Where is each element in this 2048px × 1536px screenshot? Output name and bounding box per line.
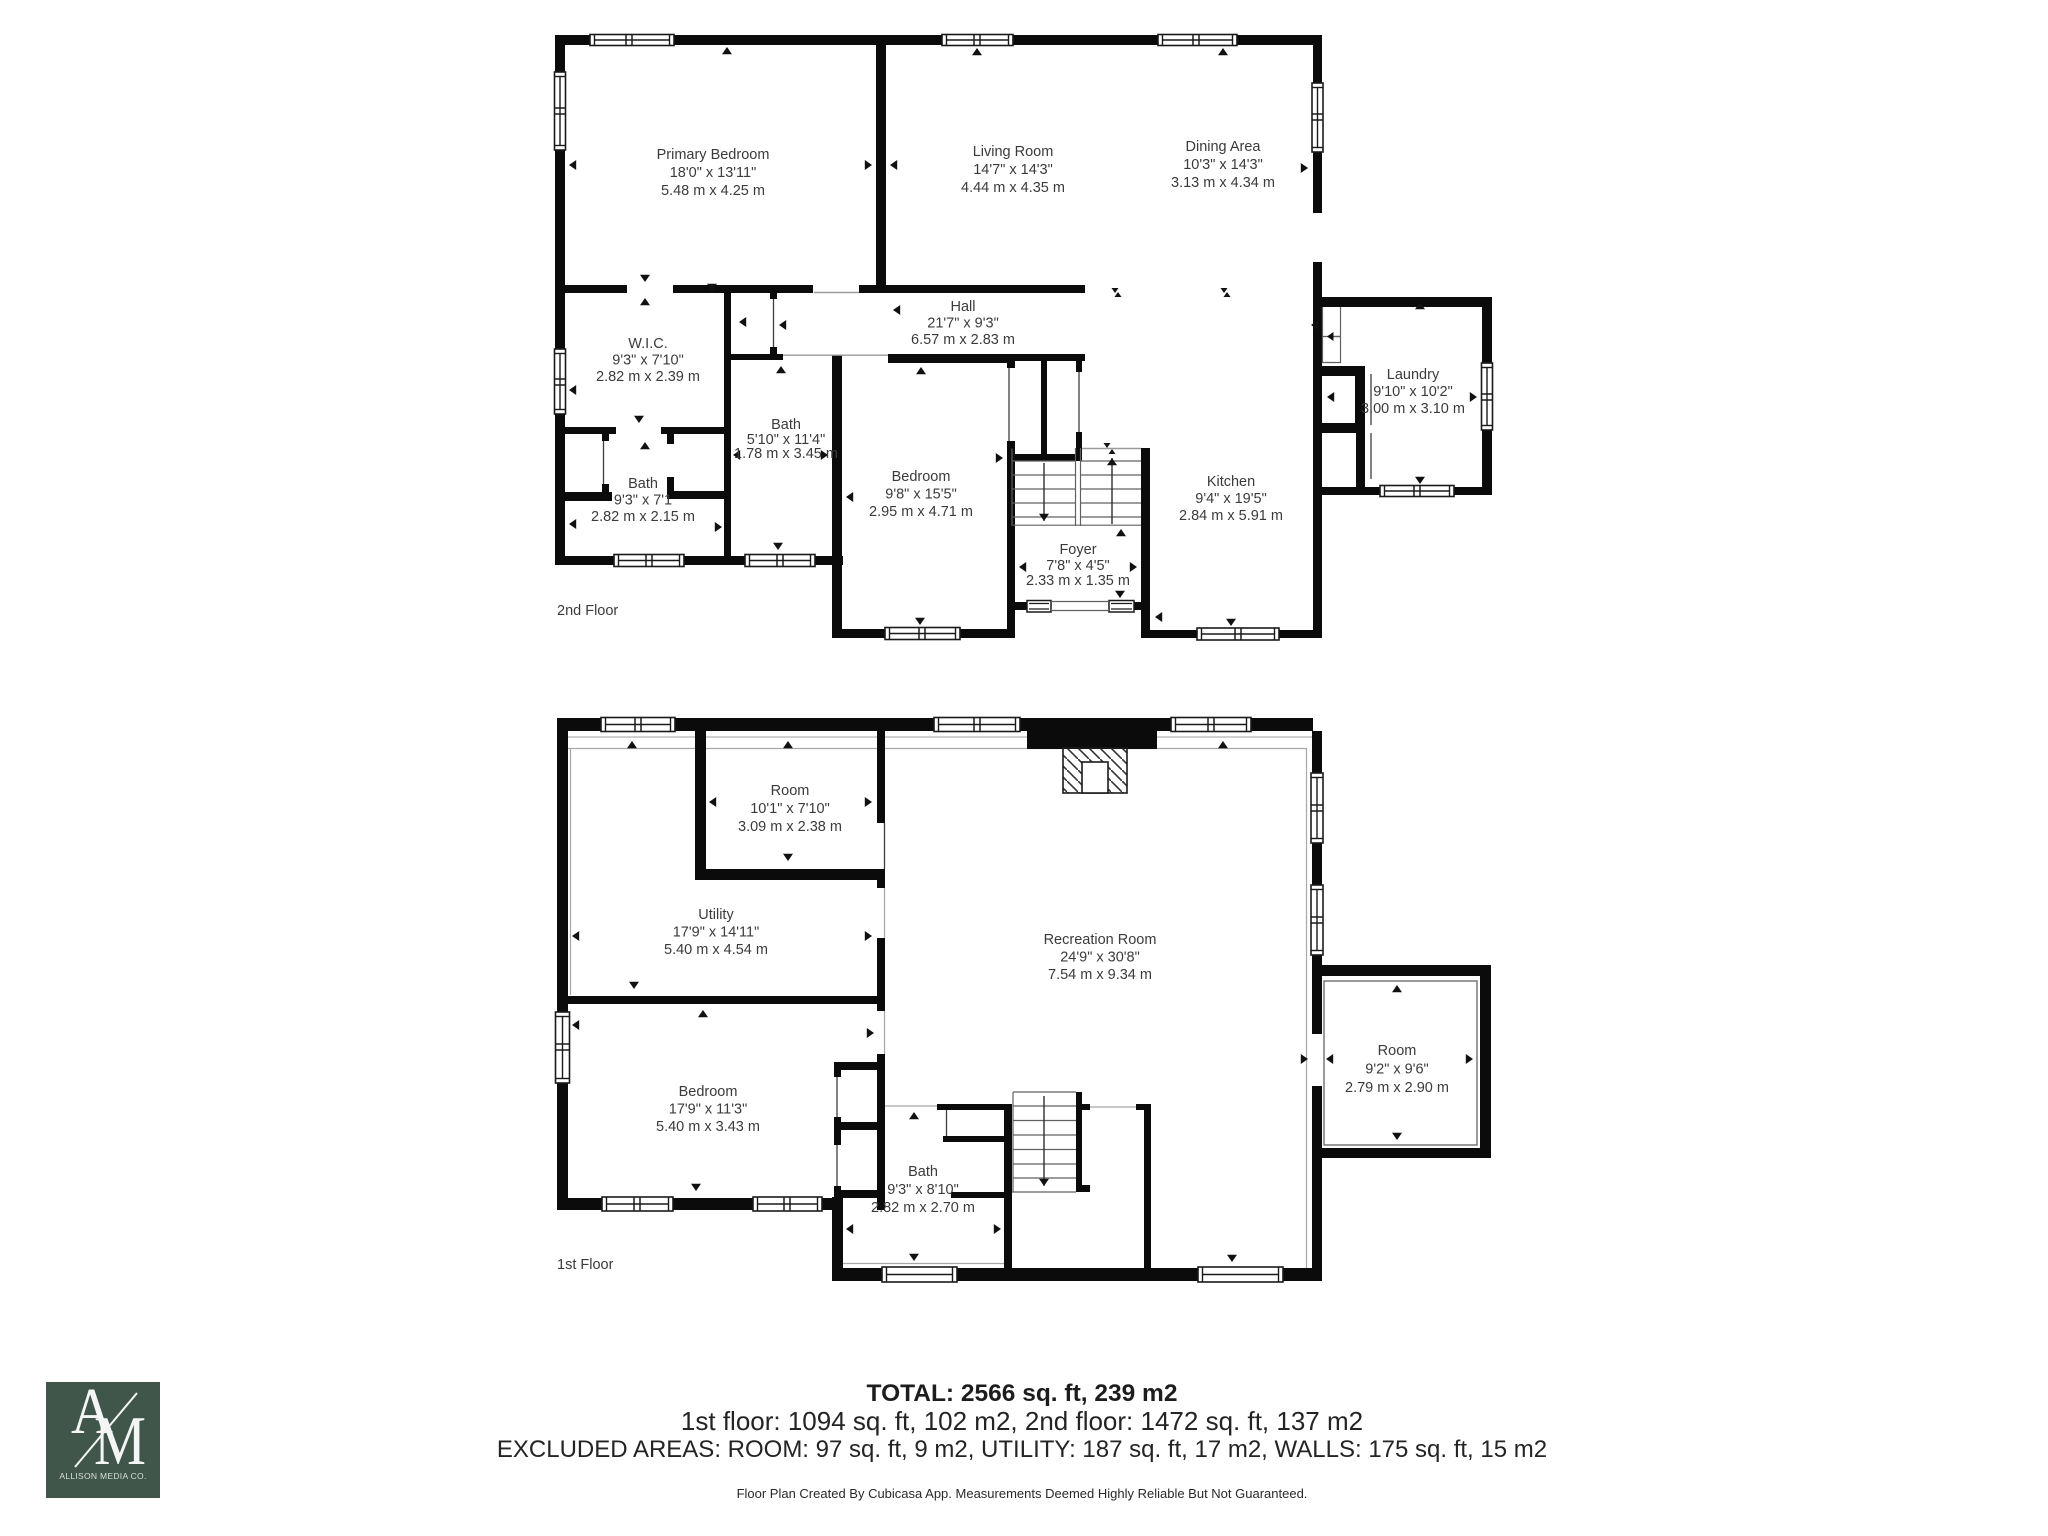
svg-text:Primary Bedroom: Primary Bedroom (657, 147, 770, 163)
svg-text:2.33 m x 1.35 m: 2.33 m x 1.35 m (1026, 573, 1130, 589)
svg-text:4.44 m x 4.35 m: 4.44 m x 4.35 m (961, 180, 1065, 196)
svg-text:1st Floor: 1st Floor (557, 1257, 614, 1273)
svg-text:2.79 m x 2.90 m: 2.79 m x 2.90 m (1345, 1080, 1449, 1096)
svg-text:2.82 m x 2.39 m: 2.82 m x 2.39 m (596, 369, 700, 385)
svg-text:18'0" x 13'11": 18'0" x 13'11" (670, 165, 757, 181)
svg-text:9'3" x 8'10": 9'3" x 8'10" (887, 1182, 958, 1198)
svg-text:EXCLUDED AREAS: ROOM: 97 sq. f: EXCLUDED AREAS: ROOM: 97 sq. ft, 9 m2, U… (497, 1436, 1547, 1463)
svg-text:17'9" x 14'11": 17'9" x 14'11" (673, 925, 760, 941)
svg-text:Bedroom: Bedroom (892, 469, 951, 485)
svg-text:9'10" x 10'2": 9'10" x 10'2" (1373, 384, 1453, 400)
svg-text:5.40 m x 3.43 m: 5.40 m x 3.43 m (656, 1119, 760, 1135)
svg-text:M: M (94, 1403, 146, 1480)
svg-text:1st floor: 1094 sq. ft, 102 m2: 1st floor: 1094 sq. ft, 102 m2, 2nd floo… (681, 1406, 1363, 1436)
svg-text:ALLISON MEDIA CO.: ALLISON MEDIA CO. (59, 1471, 146, 1481)
svg-text:5.40 m x 4.54 m: 5.40 m x 4.54 m (664, 942, 768, 958)
svg-text:2.82 m x 2.70 m: 2.82 m x 2.70 m (871, 1200, 975, 1216)
svg-text:3.09 m x 2.38 m: 3.09 m x 2.38 m (738, 819, 842, 835)
svg-text:21'7" x 9'3": 21'7" x 9'3" (927, 316, 998, 332)
svg-text:Living Room: Living Room (973, 144, 1054, 160)
svg-text:10'1" x 7'10": 10'1" x 7'10" (750, 801, 830, 817)
svg-text:3.13 m x 4.34 m: 3.13 m x 4.34 m (1171, 175, 1275, 191)
svg-text:Laundry: Laundry (1387, 367, 1440, 383)
svg-text:Recreation Room: Recreation Room (1044, 932, 1157, 948)
svg-text:6.57 m x 2.83 m: 6.57 m x 2.83 m (911, 332, 1015, 348)
svg-text:3.00 m x 3.10 m: 3.00 m x 3.10 m (1361, 401, 1465, 417)
svg-text:Utility: Utility (698, 907, 734, 923)
svg-text:Room: Room (1378, 1043, 1417, 1059)
svg-text:9'3" x 7'1: 9'3" x 7'1 (614, 493, 672, 509)
svg-text:TOTAL: 2566 sq. ft, 239 m2: TOTAL: 2566 sq. ft, 239 m2 (867, 1380, 1178, 1407)
svg-text:9'8" x 15'5": 9'8" x 15'5" (885, 487, 956, 503)
svg-text:2.84 m x 5.91 m: 2.84 m x 5.91 m (1179, 508, 1283, 524)
svg-text:17'9" x 11'3": 17'9" x 11'3" (669, 1102, 747, 1118)
svg-text:Kitchen: Kitchen (1207, 474, 1255, 490)
svg-text:24'9" x 30'8": 24'9" x 30'8" (1060, 950, 1140, 966)
svg-text:Bedroom: Bedroom (679, 1084, 738, 1100)
svg-text:Hall: Hall (951, 299, 976, 315)
svg-text:Dining Area: Dining Area (1186, 139, 1262, 155)
svg-text:9'2" x 9'6": 9'2" x 9'6" (1365, 1062, 1428, 1078)
svg-text:2.95 m x 4.71 m: 2.95 m x 4.71 m (869, 504, 973, 520)
svg-text:5.48 m x 4.25 m: 5.48 m x 4.25 m (661, 183, 765, 199)
svg-text:Bath: Bath (771, 417, 801, 433)
svg-text:7.54 m x 9.34 m: 7.54 m x 9.34 m (1048, 967, 1152, 983)
svg-text:2nd Floor: 2nd Floor (557, 603, 618, 619)
svg-text:Foyer: Foyer (1059, 542, 1096, 558)
svg-text:10'3" x 14'3": 10'3" x 14'3" (1183, 157, 1263, 173)
svg-text:7'8" x 4'5": 7'8" x 4'5" (1046, 558, 1109, 574)
svg-text:Bath: Bath (908, 1164, 938, 1180)
svg-text:2.82 m x 2.15 m: 2.82 m x 2.15 m (591, 509, 695, 525)
svg-text:14'7" x 14'3": 14'7" x 14'3" (973, 162, 1053, 178)
svg-text:9'3" x 7'10": 9'3" x 7'10" (612, 353, 683, 369)
svg-text:Bath: Bath (628, 476, 658, 492)
svg-text:Floor Plan Created By Cubicasa: Floor Plan Created By Cubicasa App. Meas… (737, 1486, 1308, 1501)
svg-text:1.78 m x 3.45 m: 1.78 m x 3.45 m (734, 446, 838, 462)
svg-text:Room: Room (771, 783, 810, 799)
svg-text:9'4" x 19'5": 9'4" x 19'5" (1195, 491, 1266, 507)
svg-text:W.I.C.: W.I.C. (628, 336, 667, 352)
